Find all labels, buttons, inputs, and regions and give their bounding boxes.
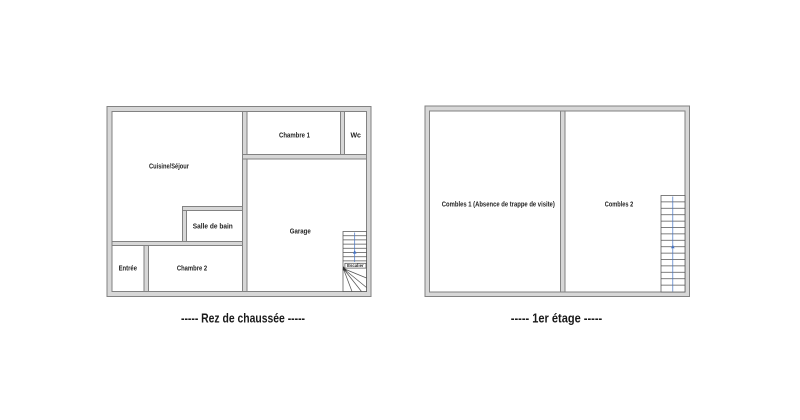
svg-text:Combles 1 (Absence de trappe d: Combles 1 (Absence de trappe de visite) (442, 202, 555, 209)
svg-text:----- 1er étage -----: ----- 1er étage ----- (511, 312, 602, 326)
svg-text:Salle de bain: Salle de bain (193, 224, 233, 231)
svg-text:Escalier: Escalier (347, 263, 364, 268)
svg-text:Cuisine/Séjour: Cuisine/Séjour (149, 163, 189, 170)
svg-text:----- Rez de chaussée -----: ----- Rez de chaussée ----- (181, 312, 305, 326)
svg-text:Combles 2: Combles 2 (605, 202, 633, 209)
svg-text:Garage: Garage (290, 229, 311, 236)
svg-text:Wc: Wc (350, 133, 361, 140)
svg-text:Entrée: Entrée (119, 265, 137, 272)
svg-text:Chambre 1: Chambre 1 (279, 133, 310, 140)
svg-text:Chambre 2: Chambre 2 (177, 266, 207, 273)
